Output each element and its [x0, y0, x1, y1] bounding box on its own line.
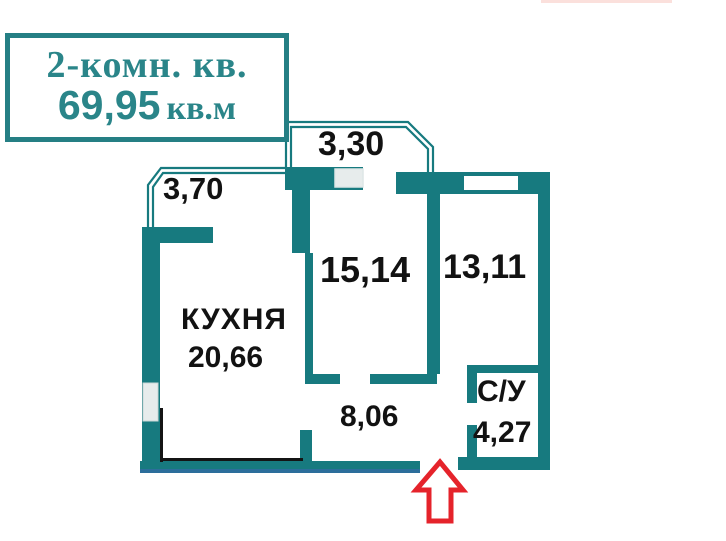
wall-bottom-left — [140, 461, 420, 470]
room-right-area-label: 13,11 — [443, 250, 526, 284]
apartment-type-label: 2-комн. кв. — [10, 45, 284, 87]
wall-room13-left — [427, 193, 440, 374]
title-box: 2-комн. кв. 69,95кв.м — [5, 33, 289, 142]
wall-room15-bottom-left — [305, 374, 340, 384]
balcony-top-area-label: 3,30 — [318, 127, 384, 161]
room15-window — [335, 169, 363, 187]
area-unit: кв.м — [166, 90, 236, 127]
line-kitchen-inner-horizontal — [160, 458, 303, 461]
kitchen-area-label: 20,66 — [188, 343, 263, 373]
kitchen-name-label: КУХНЯ — [181, 305, 287, 335]
wall-bathroom-left-upper — [467, 365, 477, 403]
kitchen-window — [143, 383, 158, 421]
wall-bottom-right — [458, 457, 550, 470]
wall-right-outer — [538, 172, 550, 470]
wall-room15-bottom-right — [370, 374, 437, 384]
line-kitchen-inner-vertical — [160, 408, 163, 462]
wall-hall-stub — [300, 430, 312, 462]
room13-window — [464, 176, 518, 190]
wall-divider-kitchen-upper — [292, 187, 310, 253]
area-value: 69,95 — [58, 82, 161, 128]
kitchen-interior-lines — [160, 408, 303, 462]
wall-bathroom-top — [467, 365, 540, 373]
baseline-blue-strip — [140, 469, 420, 473]
wall-divider-kitchen-lower — [305, 253, 313, 375]
apartment-area-line: 69,95кв.м — [10, 85, 284, 126]
balcony-left-area-label: 3,70 — [163, 173, 223, 204]
floor-plan-page: 2-комн. кв. 69,95кв.м 3,30 3,70 15,14 13… — [0, 0, 726, 541]
bathroom-area-label: 4,27 — [473, 418, 531, 448]
hallway-area-label: 8,06 — [340, 402, 398, 432]
faint-top-line — [541, 0, 672, 3]
wall-kitchen-left — [142, 227, 160, 472]
room-middle-area-label: 15,14 — [320, 252, 410, 288]
entrance-arrow-icon — [416, 462, 463, 521]
bathroom-name-label: С/У — [477, 377, 526, 407]
